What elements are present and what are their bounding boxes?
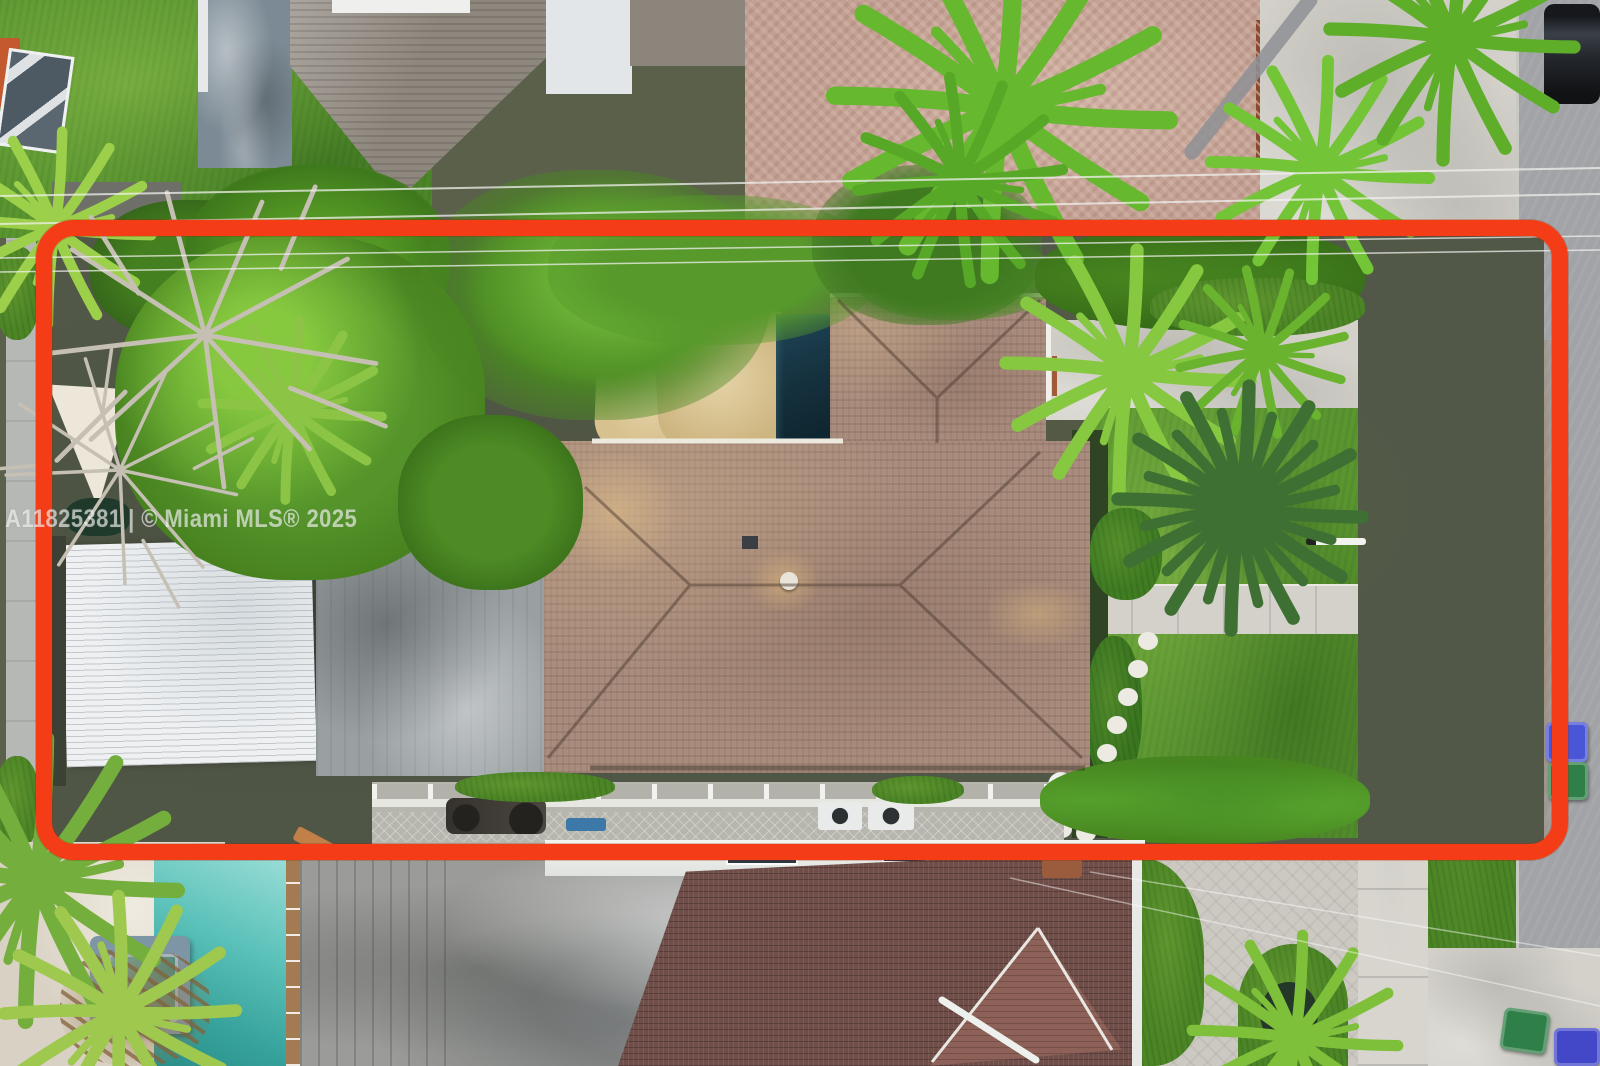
tile-roof-trim (1132, 850, 1142, 1066)
aerial-photo: A11825381 | © Miami MLS® 2025 (0, 0, 1600, 1066)
property-boundary (36, 220, 1568, 860)
neighbor-flat-roof-edge (198, 0, 208, 92)
neighbor-flat-roof-blue (198, 0, 292, 168)
mls-watermark: A11825381 | © Miami MLS® 2025 (5, 505, 357, 534)
left-outside-foliage-top (0, 246, 40, 340)
dead-palm-fronds (60, 948, 210, 1066)
trash-bin-green (1499, 1007, 1550, 1055)
neighbor-roof-fragment (630, 0, 748, 66)
island-dark-center (1260, 982, 1318, 1046)
neighbor-flat-roof-white (546, 0, 632, 94)
parked-car (1544, 4, 1600, 104)
trash-bin-blue (1554, 1028, 1600, 1066)
foreground-gray-roof-planks (300, 852, 455, 1066)
left-outside-foliage-bottom (0, 756, 40, 850)
neighbor-roof-ridge-cap (332, 0, 470, 13)
